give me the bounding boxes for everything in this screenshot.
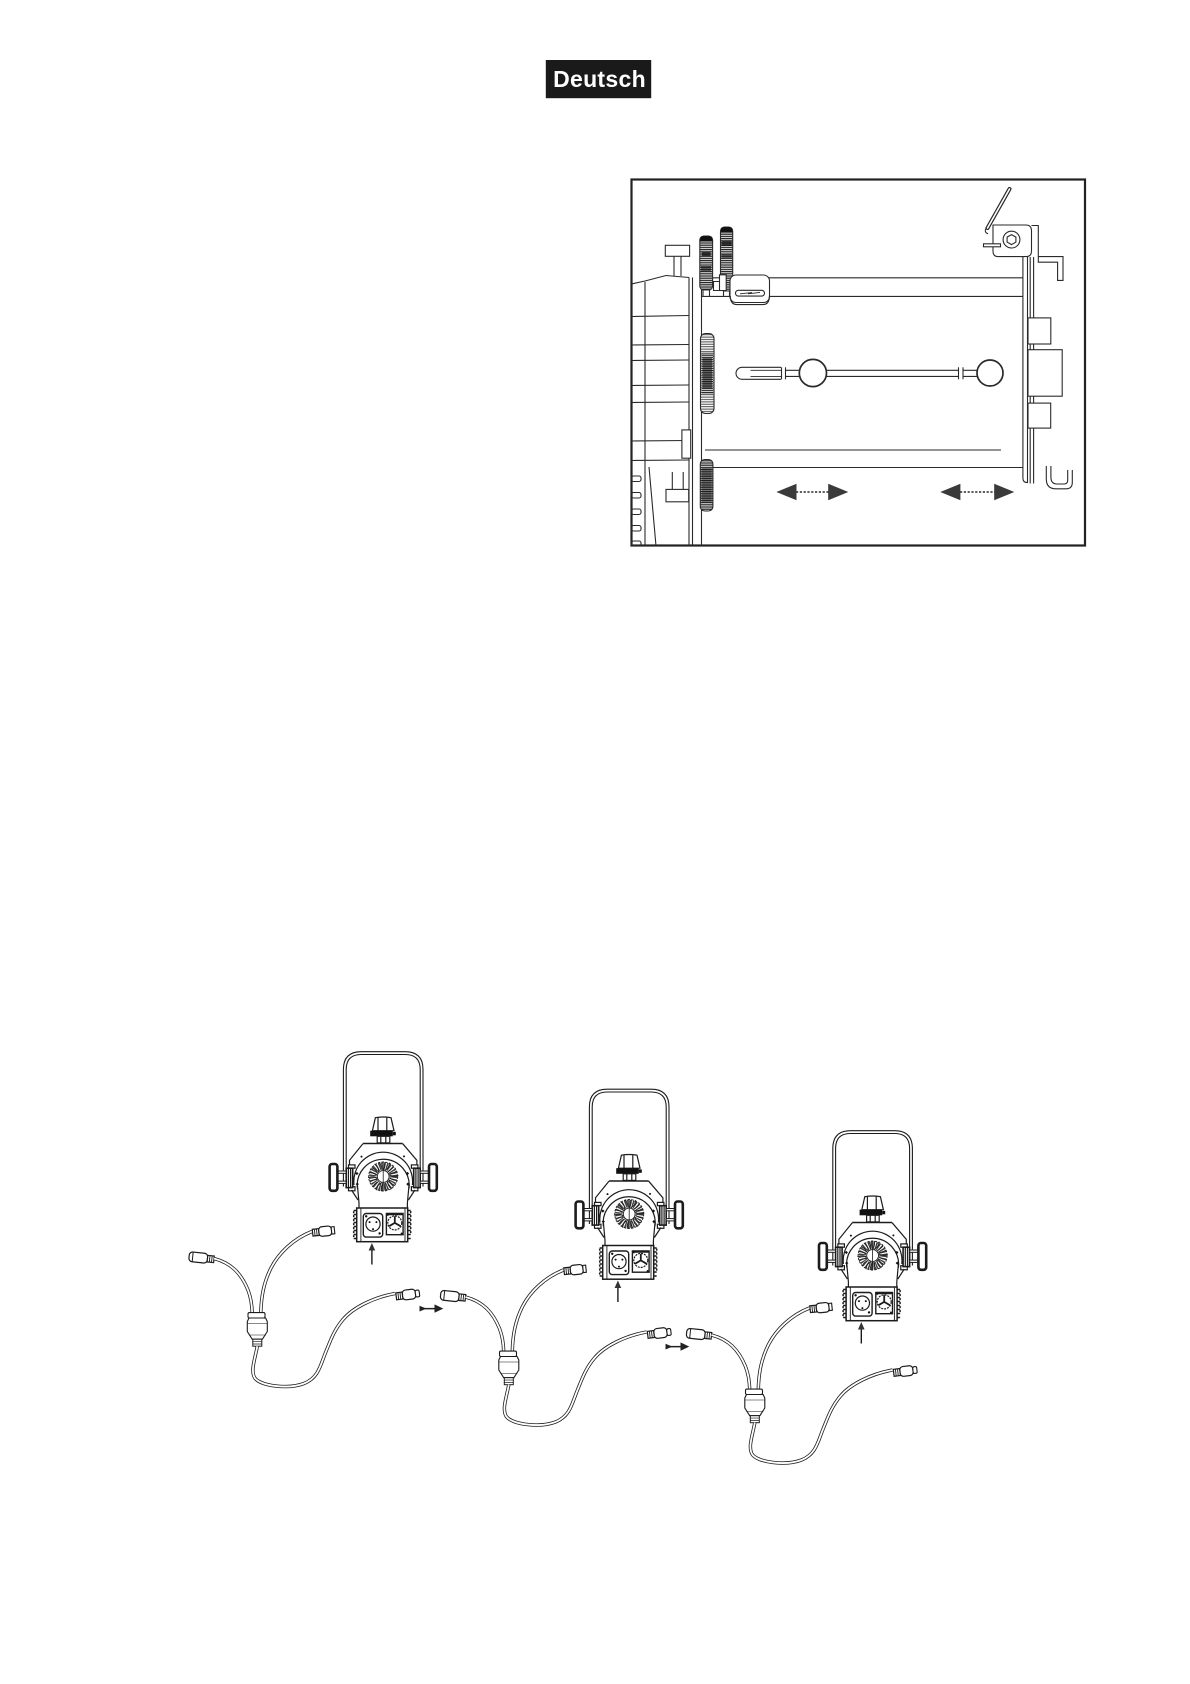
svg-text:Deutsch: Deutsch bbox=[553, 66, 646, 92]
